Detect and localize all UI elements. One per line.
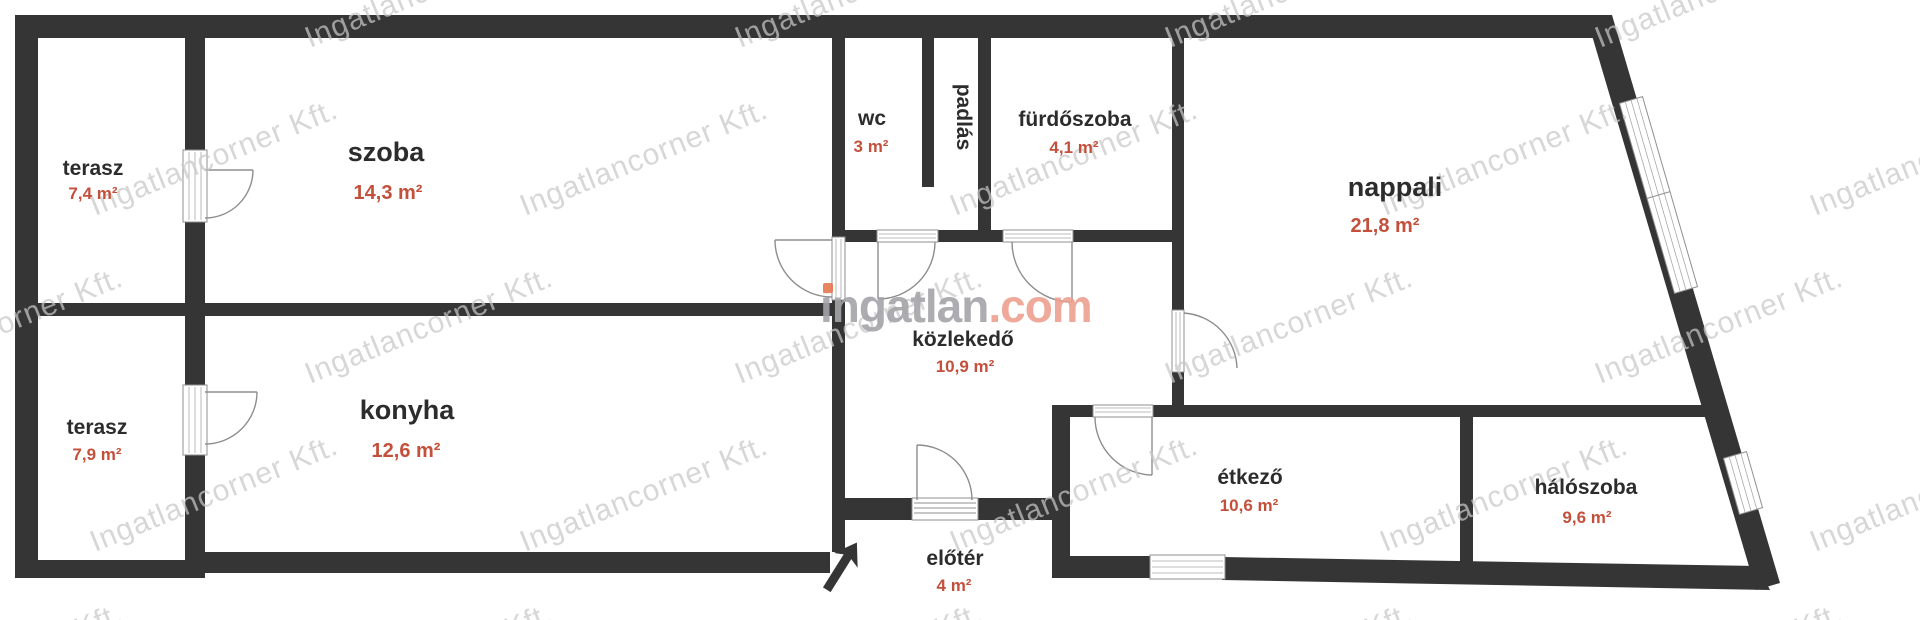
- window-diagonal-large: [1620, 97, 1698, 294]
- window: [183, 385, 207, 455]
- wall: [1222, 557, 1770, 590]
- ingatlan-logo: ingatlan.com: [820, 280, 1092, 332]
- watermark-text: Ingatlancorner Kft.: [1805, 429, 1920, 559]
- door-threshold: [1093, 405, 1153, 417]
- wall: [15, 560, 205, 578]
- room-area-konyha: 12,6 m²: [372, 440, 441, 462]
- door-threshold: [877, 230, 938, 242]
- room-label-furdoszoba: fürdőszoba: [1018, 108, 1131, 131]
- room-area-terasz-1: 7,4 m²: [68, 184, 117, 203]
- door-arc: [917, 445, 972, 500]
- room-area-kozlekedo: 10,9 m²: [936, 357, 995, 376]
- room-label-wc: wc: [857, 107, 886, 130]
- logo-tld: .com: [988, 280, 1091, 332]
- wall: [185, 38, 205, 150]
- watermark-text: Ingatlancorner Kft.: [85, 429, 342, 559]
- wall: [185, 552, 830, 573]
- wall: [1153, 405, 1726, 417]
- room-label-szoba: szoba: [348, 137, 426, 167]
- watermark-text: Ingatlancorner Kft.: [1590, 0, 1847, 54]
- room-label-terasz-2: terasz: [67, 416, 128, 439]
- wall: [1052, 405, 1093, 417]
- room-label-terasz-1: terasz: [63, 157, 124, 180]
- wall: [1172, 38, 1184, 310]
- logo-word: ingatlan: [820, 280, 988, 332]
- room-area-szoba: 14,3 m²: [354, 182, 423, 204]
- watermark-text: Ingatlancorner Kft.: [730, 597, 987, 620]
- room-label-etkezo: étkező: [1217, 466, 1282, 489]
- door-arc: [205, 392, 257, 444]
- wall: [1052, 556, 1153, 578]
- window: [1150, 555, 1225, 579]
- room-label-eloter: előtér: [926, 547, 983, 570]
- room-area-etkezo: 10,6 m²: [1220, 496, 1279, 515]
- room-area-nappali: 21,8 m²: [1351, 215, 1420, 237]
- wall: [185, 316, 205, 385]
- wall: [185, 222, 205, 303]
- wall: [832, 38, 845, 237]
- floor-plan: Ingatlancorner Kft.Ingatlancorner Kft.In…: [0, 0, 1920, 620]
- door-threshold-steps: [912, 498, 978, 520]
- room-label-konyha: konyha: [360, 395, 456, 425]
- watermark-text: Ingatlancorner Kft.: [1805, 93, 1920, 223]
- watermark-text: Ingatlancorner Kft.: [0, 597, 128, 620]
- room-area-furdoszoba: 4,1 m²: [1049, 138, 1098, 157]
- watermark-text: Ingatlancorner Kft.: [85, 93, 342, 223]
- wall: [1073, 230, 1184, 242]
- wall: [922, 38, 934, 187]
- watermark-text: Ingatlancorner Kft.: [945, 429, 1202, 559]
- svg-text:ingatlan.com: ingatlan.com: [820, 280, 1092, 332]
- watermark-text: Ingatlancorner Kft.: [1590, 261, 1847, 391]
- watermark-text: Ingatlancorner Kft.: [300, 597, 557, 620]
- watermark-text: Ingatlancorner Kft.: [300, 261, 557, 391]
- room-area-wc: 3 m²: [854, 137, 889, 156]
- wall: [938, 230, 1003, 242]
- room-label-padlas: padlás: [952, 84, 975, 151]
- logo-i-dot: [823, 283, 833, 293]
- room-label-kozlekedo: közlekedő: [912, 328, 1014, 351]
- door-threshold: [1003, 230, 1073, 242]
- room-label-nappali: nappali: [1348, 172, 1443, 202]
- room-label-haloszoba: hálószoba: [1535, 476, 1638, 499]
- room-area-eloter: 4 m²: [937, 576, 972, 595]
- watermark-text: Ingatlancorner Kft.: [515, 93, 772, 223]
- door-arc: [205, 170, 253, 218]
- watermark-text: Ingatlancorner Kft.: [515, 429, 772, 559]
- watermark-text: Ingatlancorner Kft.: [1375, 93, 1632, 223]
- room-area-terasz-2: 7,9 m²: [72, 445, 121, 464]
- wall: [845, 498, 912, 520]
- watermark-text: Ingatlancorner Kft.: [1590, 597, 1847, 620]
- watermark-text: Ingatlancorner Kft.: [1160, 597, 1417, 620]
- room-area-haloszoba: 9,6 m²: [1562, 508, 1611, 527]
- watermark-text: Ingatlancorner Kft.: [1160, 261, 1417, 391]
